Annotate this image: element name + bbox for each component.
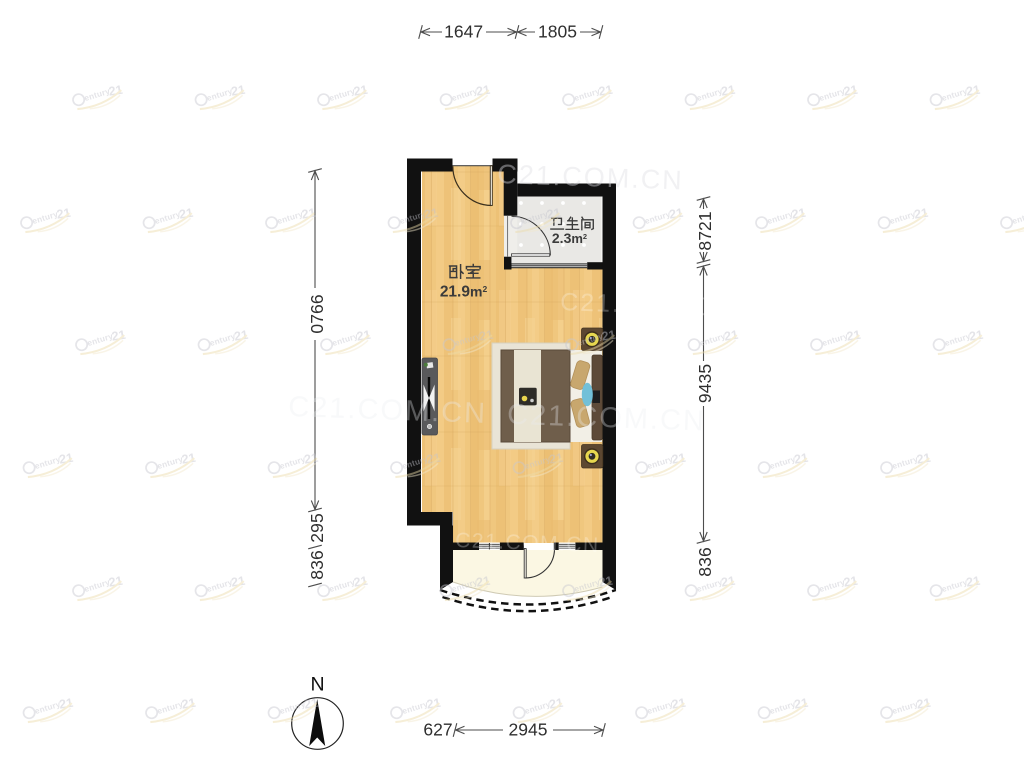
svg-text:6: 6 (307, 550, 327, 560)
svg-text:1805: 1805 (538, 22, 577, 42)
svg-text:3: 3 (695, 374, 715, 384)
svg-text:21.9m2: 21.9m2 (440, 284, 488, 301)
svg-text:2: 2 (695, 221, 715, 231)
svg-text:2.3m2: 2.3m2 (552, 230, 587, 246)
svg-text:4: 4 (695, 383, 715, 393)
svg-text:1647: 1647 (444, 22, 483, 42)
svg-text:1: 1 (695, 211, 715, 221)
svg-text:5: 5 (695, 364, 715, 374)
svg-text:6: 6 (307, 294, 327, 304)
svg-text:9: 9 (695, 393, 715, 403)
svg-text:6: 6 (695, 547, 715, 557)
svg-text:627: 627 (423, 720, 452, 740)
svg-text:7: 7 (307, 314, 327, 324)
svg-text:8: 8 (695, 241, 715, 251)
svg-text:8: 8 (307, 570, 327, 580)
svg-text:5: 5 (307, 513, 327, 523)
svg-text:2: 2 (307, 533, 327, 543)
svg-text:3: 3 (695, 557, 715, 567)
svg-text:8: 8 (695, 567, 715, 577)
svg-text:2945: 2945 (509, 720, 548, 740)
svg-text:N: N (310, 674, 324, 696)
svg-text:3: 3 (307, 560, 327, 570)
svg-text:9: 9 (307, 523, 327, 533)
svg-text:7: 7 (695, 231, 715, 241)
svg-text:6: 6 (307, 304, 327, 314)
svg-text:0: 0 (307, 324, 327, 334)
